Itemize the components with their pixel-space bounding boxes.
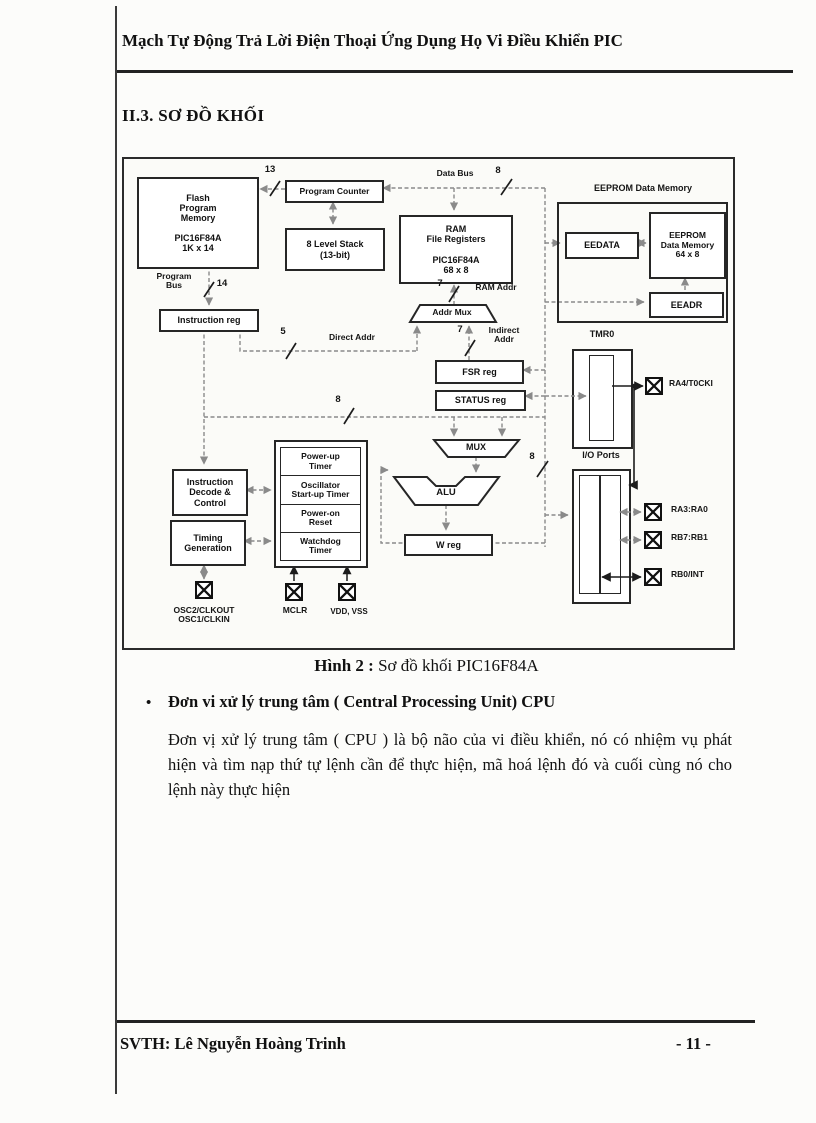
pin-rb7-rb1-label: RB7:RB1 xyxy=(671,533,731,542)
bullet-heading: Đơn vi xử lý trung tâm ( Central Process… xyxy=(168,692,555,711)
footer-author: SVTH: Lê Nguyễn Hoàng Trinh xyxy=(120,1034,346,1054)
eeprom-section-label: EEPROM Data Memory xyxy=(564,184,722,194)
body-paragraph: Đơn vị xử lý trung tâm ( CPU ) là bộ não… xyxy=(168,727,732,802)
header-rule xyxy=(117,70,793,73)
bullet-heading-line: •Đơn vi xử lý trung tâm ( Central Proces… xyxy=(146,692,726,712)
direct-addr-label: Direct Addr xyxy=(320,333,384,342)
pin-mclr-icon xyxy=(285,583,303,601)
section-title: II.3. SƠ ĐỒ KHỐI xyxy=(122,106,264,126)
addr-mux-label: Addr Mux xyxy=(424,308,480,317)
bus-width-8-mid: 8 xyxy=(330,395,346,405)
pin-osc-icon xyxy=(195,581,213,599)
figure-caption-text: Sơ đồ khối PIC16F84A xyxy=(374,656,539,675)
diagram-port-wiring xyxy=(124,159,733,648)
bus-width-14: 14 xyxy=(212,279,232,289)
footer-page-number: - 11 - xyxy=(676,1034,711,1054)
bus-width-7-indirect: 7 xyxy=(452,325,468,335)
pin-ra3-ra0-icon xyxy=(644,503,662,521)
bus-width-7-ramaddr: 7 xyxy=(432,279,448,289)
page-header: Mạch Tự Động Trả Lời Điện Thoại Ứng Dụng… xyxy=(122,31,742,51)
pin-vdd-vss-label: VDD, VSS xyxy=(320,608,378,617)
footer-rule xyxy=(117,1020,755,1023)
pin-rb0-int-label: RB0/INT xyxy=(671,570,731,579)
left-margin-rule xyxy=(115,6,117,1094)
pin-ra4-t0cki-icon xyxy=(645,377,663,395)
alu-label: ALU xyxy=(420,488,472,498)
figure-caption: Hình 2 : Sơ đồ khối PIC16F84A xyxy=(122,656,731,676)
bus-width-5: 5 xyxy=(275,327,291,337)
figure-caption-label: Hình 2 : xyxy=(314,656,374,675)
pin-ra4-t0cki-label: RA4/T0CKI xyxy=(669,379,739,388)
block-diagram: Flash Program Memory PIC16F84A 1K x 14 P… xyxy=(122,157,735,650)
document-page: Mạch Tự Động Trả Lời Điện Thoại Ứng Dụng… xyxy=(0,0,816,1123)
data-bus-label: Data Bus xyxy=(423,169,487,178)
pin-rb0-int-icon xyxy=(644,568,662,586)
bus-width-8-io: 8 xyxy=(524,452,540,462)
io-ports-label: I/O Ports xyxy=(575,451,627,461)
indirect-addr-label: Indirect Addr xyxy=(480,326,528,345)
pin-rb7-rb1-icon xyxy=(644,531,662,549)
program-bus-label: Program Bus xyxy=(148,272,200,291)
tmr0-label: TMR0 xyxy=(576,330,628,340)
mux-label: MUX xyxy=(450,443,502,453)
bullet-marker: • xyxy=(146,695,168,712)
pin-osc-label: OSC2/CLKOUT OSC1/CLKIN xyxy=(154,606,254,625)
pin-mclr-label: MCLR xyxy=(274,606,316,615)
pin-ra3-ra0-label: RA3:RA0 xyxy=(671,505,731,514)
bus-width-13: 13 xyxy=(260,165,280,175)
bus-width-8-databus: 8 xyxy=(490,166,506,176)
ram-addr-label: RAM Addr xyxy=(466,283,526,292)
pin-vdd-vss-icon xyxy=(338,583,356,601)
